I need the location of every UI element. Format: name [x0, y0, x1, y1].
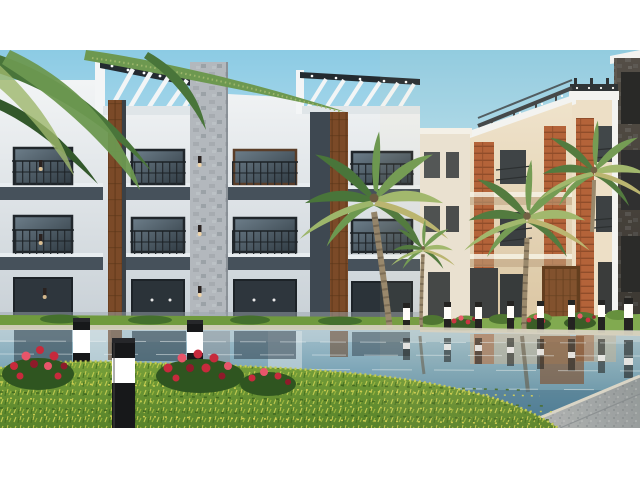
wall-sconce — [198, 225, 202, 236]
balcony-railing — [130, 231, 186, 254]
wall-sconce — [43, 288, 47, 299]
wall-sconce — [198, 156, 202, 167]
scene-svg — [0, 0, 640, 480]
wall-sconce — [39, 234, 43, 245]
wall-sconce — [39, 160, 43, 171]
balcony-railing — [232, 231, 298, 254]
balcony-railing — [12, 230, 74, 254]
bollard-light-foreground — [112, 338, 135, 428]
balcony-railing — [12, 161, 74, 185]
pool-coping — [0, 325, 420, 330]
wall-sconce — [198, 286, 202, 297]
letterbox-top — [0, 0, 640, 50]
balcony-railing — [232, 162, 298, 185]
dark-pier — [310, 112, 330, 320]
render-canvas — [0, 0, 640, 480]
letterbox-bottom — [0, 428, 640, 480]
sunlight-tint — [380, 50, 640, 428]
balcony-railing — [130, 162, 186, 185]
